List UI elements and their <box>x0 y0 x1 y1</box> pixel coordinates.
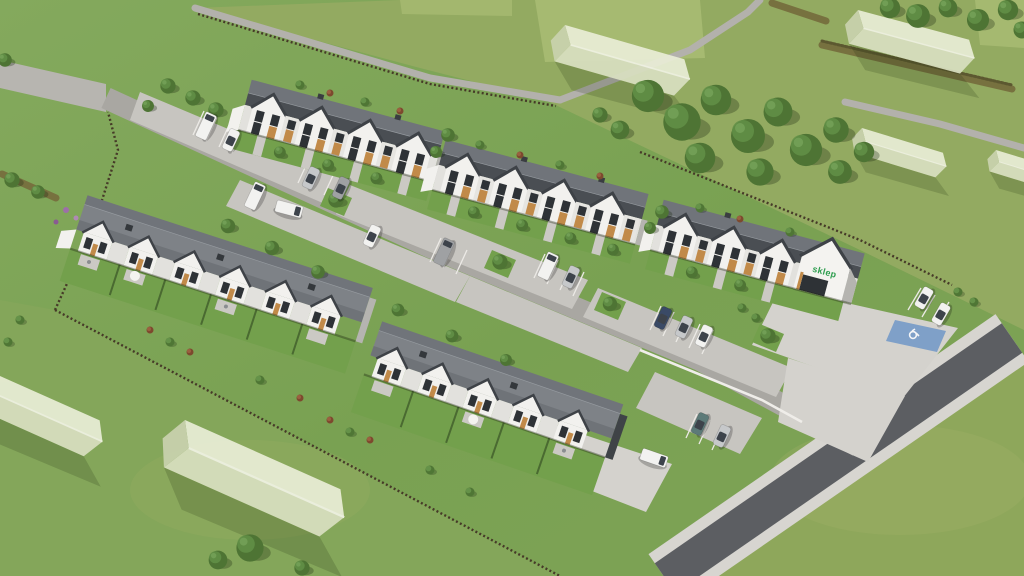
aerial-estate-visualization: sklep <box>0 0 1024 576</box>
flowerbed <box>54 220 59 225</box>
light-field-patch <box>400 0 512 16</box>
flowerbed <box>63 207 69 213</box>
flowerbed <box>74 216 79 221</box>
